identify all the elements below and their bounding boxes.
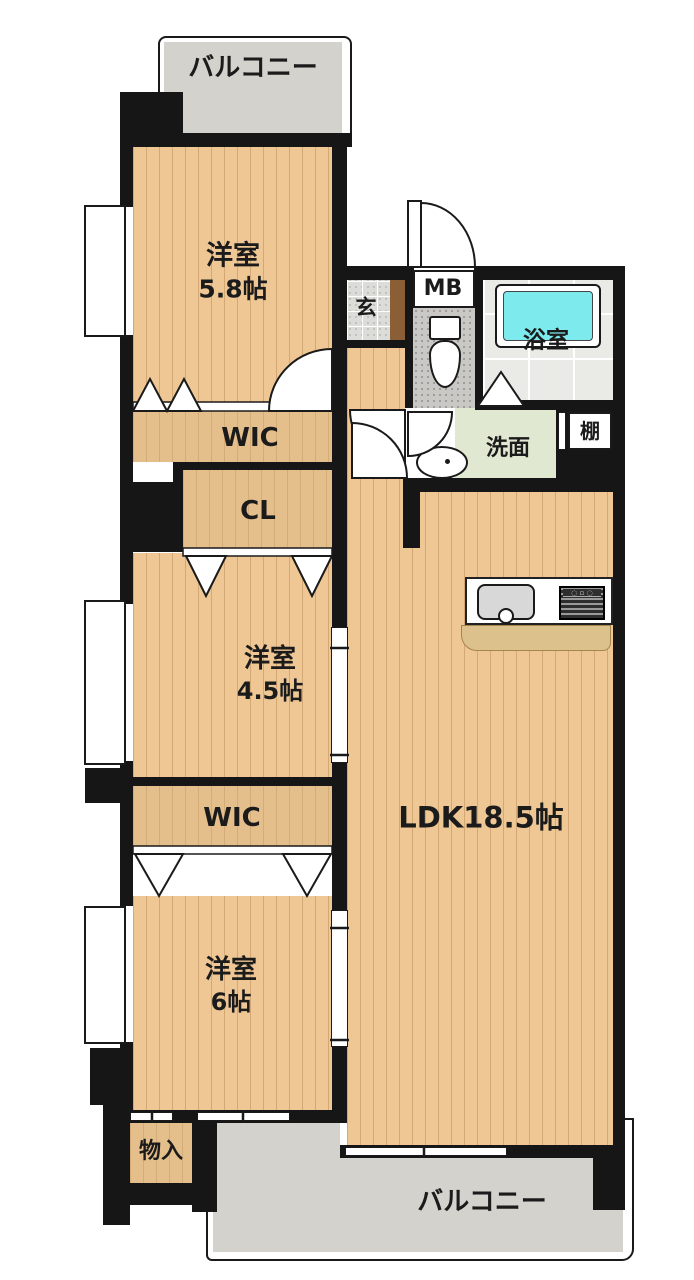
- meter-box-label: MB: [424, 278, 463, 300]
- door-band-icon: [183, 548, 332, 556]
- shelf-label: 棚: [580, 421, 600, 441]
- door-symbols: [0, 0, 694, 1280]
- room2-size-label: 4.5帖: [237, 679, 304, 703]
- balcony-top-label: バルコニー: [188, 55, 317, 81]
- balcony-bottom-label: バルコニー: [417, 1189, 546, 1215]
- wic2-folding-door-icon: [283, 854, 331, 896]
- cl-folding-door-icon: [186, 556, 226, 596]
- wic2-folding-door-icon: [135, 854, 183, 896]
- bath-folding-door-icon: [478, 372, 524, 406]
- bath-label: 浴室: [523, 330, 569, 353]
- room3-size-label: 6帖: [211, 990, 252, 1014]
- storage-label: 物入: [139, 1141, 183, 1163]
- closet-label: CL: [240, 498, 276, 524]
- cl-folding-door-icon: [292, 556, 332, 596]
- wic1-label: WIC: [221, 425, 278, 451]
- room2-name-label: 洋室: [244, 646, 296, 672]
- room1-door-swing-icon: [269, 349, 332, 411]
- ldk-label: LDK18.5帖: [398, 804, 564, 833]
- floor-plan: ◌ ▫ ◌ バ: [0, 0, 694, 1280]
- wic2-label: WIC: [203, 805, 260, 831]
- washroom-door-swing-icon: [408, 412, 452, 456]
- entrance-door-leaf-icon: [408, 201, 421, 267]
- genkan-label: 玄: [356, 298, 377, 319]
- room3-name-label: 洋室: [205, 957, 257, 983]
- washroom-label: 洗面: [486, 438, 530, 460]
- door-band-icon: [133, 846, 332, 854]
- entrance-door-swing-icon: [421, 203, 475, 267]
- room1-size-label: 5.8帖: [198, 277, 267, 302]
- room1-name-label: 洋室: [206, 243, 260, 270]
